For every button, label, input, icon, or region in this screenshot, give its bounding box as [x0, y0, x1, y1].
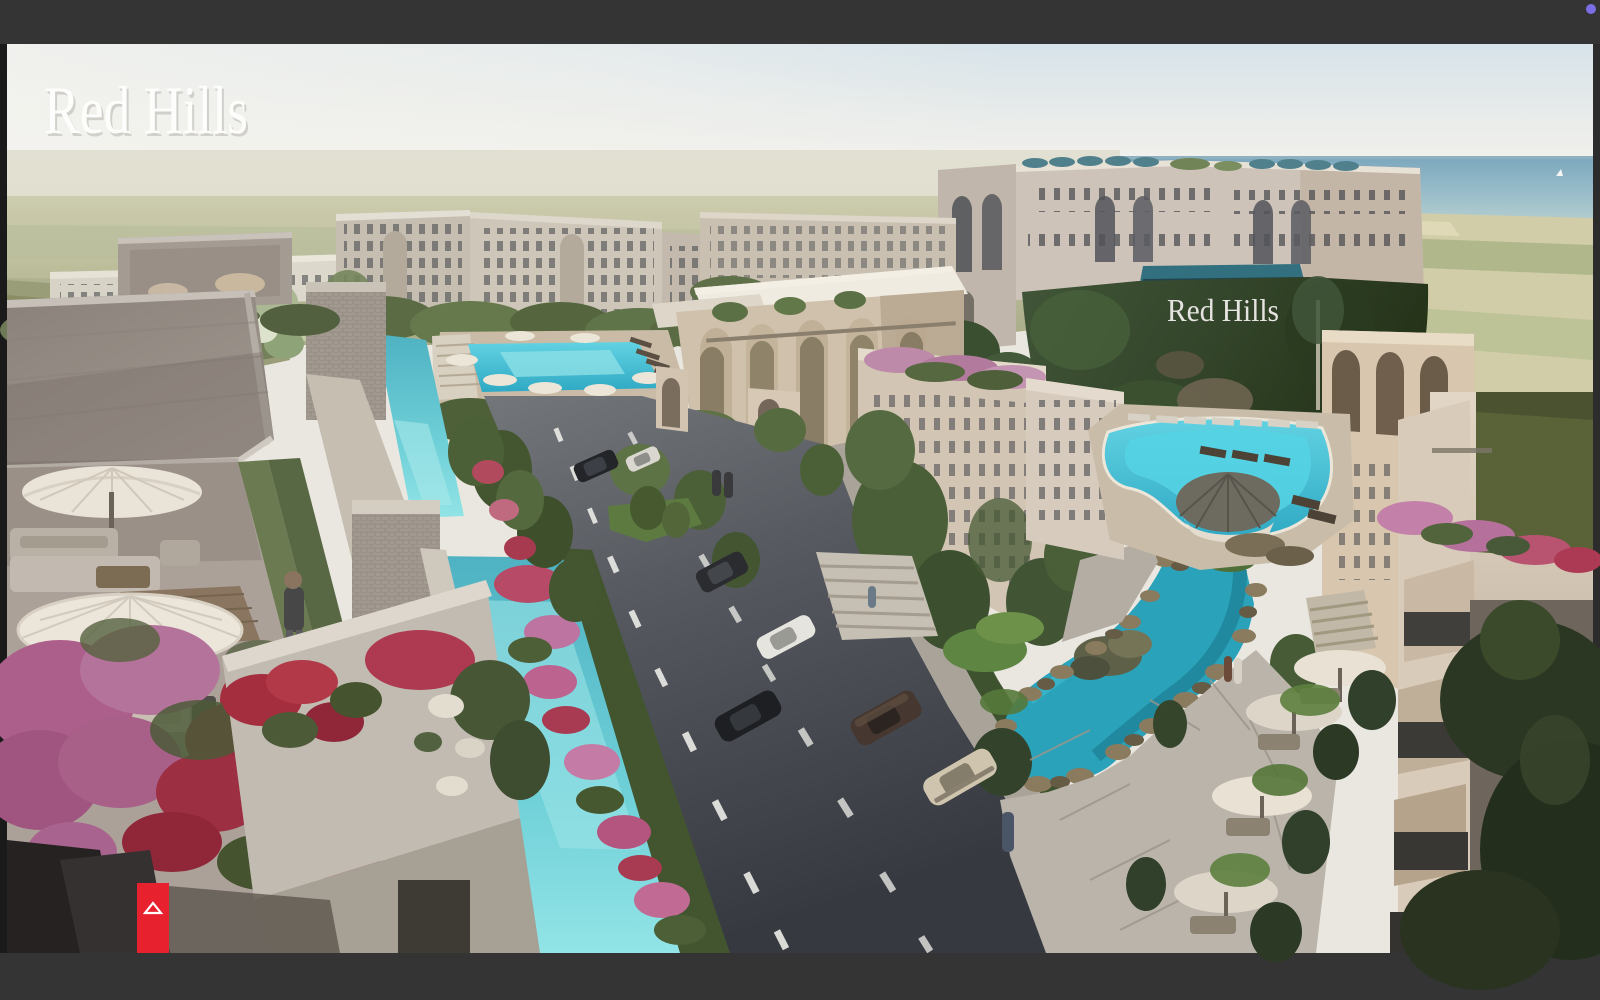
- svg-text:Red Hills: Red Hills: [1167, 292, 1279, 328]
- svg-text:Red Hills: Red Hills: [44, 72, 248, 148]
